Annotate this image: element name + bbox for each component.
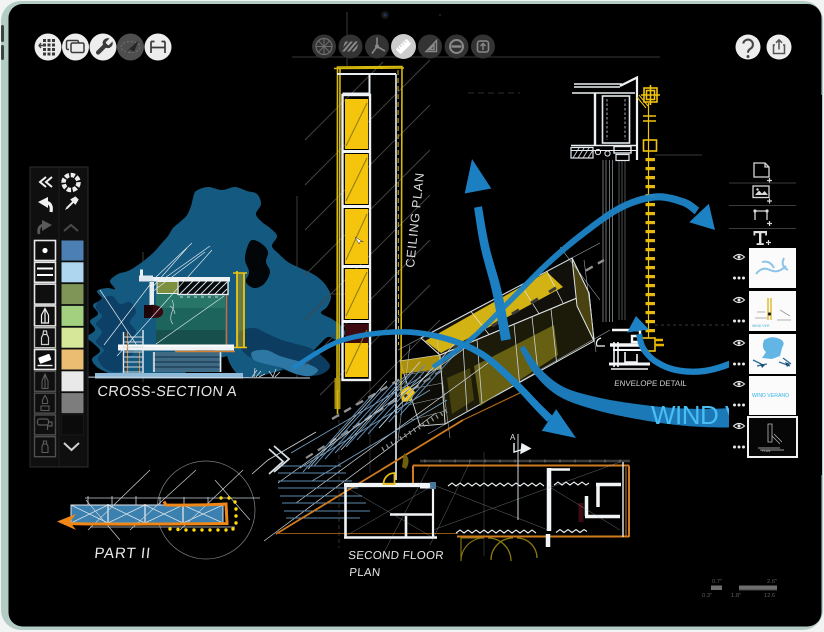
svg-text:2.6": 2.6": [767, 579, 777, 585]
svg-text:WIND VERANO: WIND VERANO: [752, 393, 789, 399]
svg-text:A: A: [510, 433, 516, 442]
svg-text:0.7": 0.7": [712, 579, 722, 585]
svg-text:0.3": 0.3": [702, 593, 712, 599]
svg-text:1.8": 1.8": [731, 593, 741, 599]
svg-text:ENVELOPE DETAIL: ENVELOPE DETAIL: [614, 379, 688, 388]
svg-text:PLAN: PLAN: [349, 567, 381, 579]
svg-text:SECOND FLOOR: SECOND FLOOR: [348, 550, 445, 562]
svg-text:PLAN: PLAN: [762, 449, 771, 453]
svg-text:PART II: PART II: [94, 545, 152, 562]
svg-text:CROSS-SECTION A: CROSS-SECTION A: [97, 384, 238, 400]
svg-text:WIND VER: WIND VER: [752, 324, 770, 328]
svg-text:12.6: 12.6: [764, 593, 775, 599]
